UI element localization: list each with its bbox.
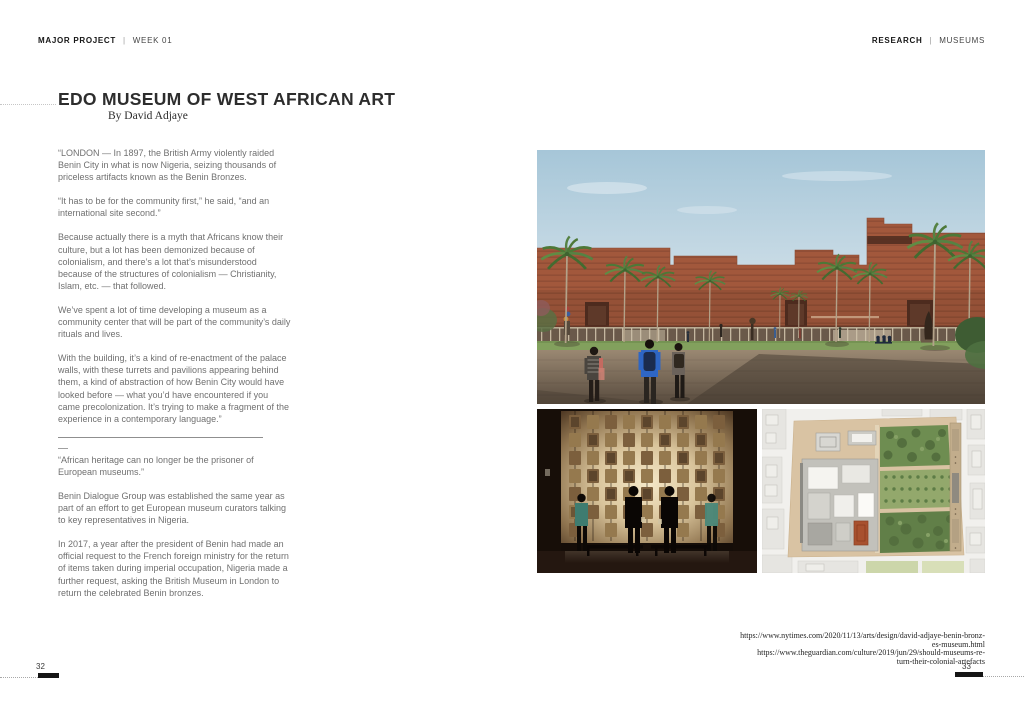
header-left: MAJOR PROJECT|WEEK 01 bbox=[38, 36, 172, 45]
paragraph: “It has to be for the community first,” … bbox=[58, 195, 292, 219]
bottom-fields bbox=[866, 561, 964, 573]
paragraph: “LONDON — In 1897, the British Army viol… bbox=[58, 147, 292, 183]
bronze-plaques bbox=[569, 415, 725, 537]
paragraph: “African heritage can no longer be the p… bbox=[58, 454, 292, 478]
paragraph: We’ve spent a lot of time developing a m… bbox=[58, 304, 292, 340]
header-right: RESEARCH|MUSEUMS bbox=[872, 36, 985, 45]
paragraph: Benin Dialogue Group was established the… bbox=[58, 490, 292, 526]
interior-render-image bbox=[537, 409, 757, 573]
section-divider bbox=[58, 437, 263, 438]
byline: By David Adjaye bbox=[108, 110, 188, 122]
page-number-left: 32 bbox=[36, 662, 45, 671]
colonnade bbox=[537, 327, 985, 342]
floor bbox=[537, 551, 757, 573]
paragraph: Because actually there is a myth that Af… bbox=[58, 231, 292, 291]
page-title: EDO MUSEUM OF WEST AFRICAN ART bbox=[58, 89, 395, 110]
footer-bar-right bbox=[955, 672, 983, 677]
lawn bbox=[537, 341, 985, 351]
footer-bar-left bbox=[38, 673, 59, 678]
footer-dotted-line-left bbox=[0, 677, 38, 678]
wall-label bbox=[545, 469, 550, 476]
gardens bbox=[875, 425, 956, 553]
citation-line: turn-their-colonial-artefacts bbox=[685, 658, 985, 667]
paragraph: In 2017, a year after the president of B… bbox=[58, 538, 292, 598]
terracotta-courtyard bbox=[854, 521, 868, 545]
site-plan-image bbox=[762, 409, 985, 573]
facade-signage bbox=[811, 316, 879, 318]
footer-dotted-line-right bbox=[983, 676, 1024, 677]
header-right-secondary: MUSEUMS bbox=[939, 36, 985, 45]
header-right-primary: RESEARCH bbox=[872, 36, 923, 45]
header-right-divider: | bbox=[929, 36, 932, 45]
exterior-render-image bbox=[537, 150, 985, 404]
header-left-primary: MAJOR PROJECT bbox=[38, 36, 116, 45]
right-linear-building bbox=[950, 423, 961, 551]
header-left-secondary: WEEK 01 bbox=[133, 36, 173, 45]
paragraph: With the building, it’s a kind of re-ena… bbox=[58, 352, 292, 425]
article-column: “LONDON — In 1897, the British Army viol… bbox=[58, 147, 292, 611]
page-number-right: 33 bbox=[962, 662, 971, 671]
section-dash bbox=[58, 448, 68, 449]
citations: https://www.nytimes.com/2020/11/13/arts/… bbox=[685, 632, 985, 666]
document-page: MAJOR PROJECT|WEEK 01 RESEARCH|MUSEUMS E… bbox=[0, 0, 1024, 725]
title-leader-line bbox=[0, 104, 56, 105]
header-left-divider: | bbox=[123, 36, 126, 45]
